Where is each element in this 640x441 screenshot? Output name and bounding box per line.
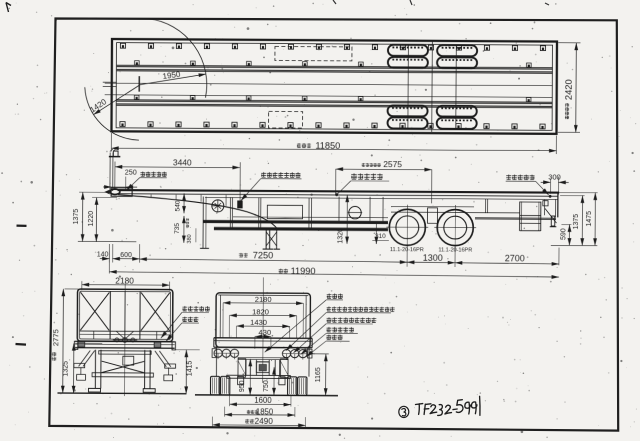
svg-text:1300: 1300 <box>423 253 443 263</box>
svg-text:7250: 7250 <box>253 250 274 260</box>
svg-text:2180: 2180 <box>115 275 134 285</box>
svg-text:735: 735 <box>174 223 181 234</box>
svg-text:1375: 1375 <box>573 214 580 230</box>
svg-text:1820: 1820 <box>252 307 269 316</box>
svg-text:11990: 11990 <box>291 266 316 276</box>
svg-text:2775: 2775 <box>51 329 60 346</box>
svg-text:950: 950 <box>239 380 246 392</box>
svg-text:1325: 1325 <box>62 361 69 377</box>
svg-text:590: 590 <box>560 228 567 240</box>
svg-text:2490: 2490 <box>255 417 274 426</box>
svg-text:140: 140 <box>97 252 109 259</box>
svg-text:11850: 11850 <box>315 140 340 150</box>
svg-text:540: 540 <box>175 200 182 211</box>
svg-text:1415: 1415 <box>187 361 194 377</box>
svg-text:2420: 2420 <box>563 79 574 100</box>
svg-text:1475: 1475 <box>586 211 593 227</box>
svg-text:1600: 1600 <box>254 396 272 405</box>
svg-text:2180: 2180 <box>255 295 272 304</box>
svg-text:310: 310 <box>375 233 386 240</box>
svg-text:1850: 1850 <box>256 407 274 416</box>
svg-text:300: 300 <box>548 173 560 182</box>
svg-text:250: 250 <box>125 168 137 177</box>
svg-text:380: 380 <box>187 234 193 243</box>
svg-text:2575: 2575 <box>383 159 402 169</box>
svg-text:1220: 1220 <box>88 211 95 227</box>
svg-text:750: 750 <box>263 380 270 392</box>
svg-text:600: 600 <box>120 252 132 259</box>
svg-text:11.1-20-16PR: 11.1-20-16PR <box>438 247 472 253</box>
svg-text:11.1-20-16PR: 11.1-20-16PR <box>390 247 424 253</box>
svg-text:430: 430 <box>258 328 271 337</box>
svg-text:2700: 2700 <box>505 253 525 263</box>
svg-text:1320: 1320 <box>337 228 344 244</box>
svg-text:3440: 3440 <box>173 157 192 167</box>
svg-text:1165: 1165 <box>315 367 322 382</box>
svg-text:1375: 1375 <box>73 209 80 225</box>
svg-text:1430: 1430 <box>250 318 267 327</box>
